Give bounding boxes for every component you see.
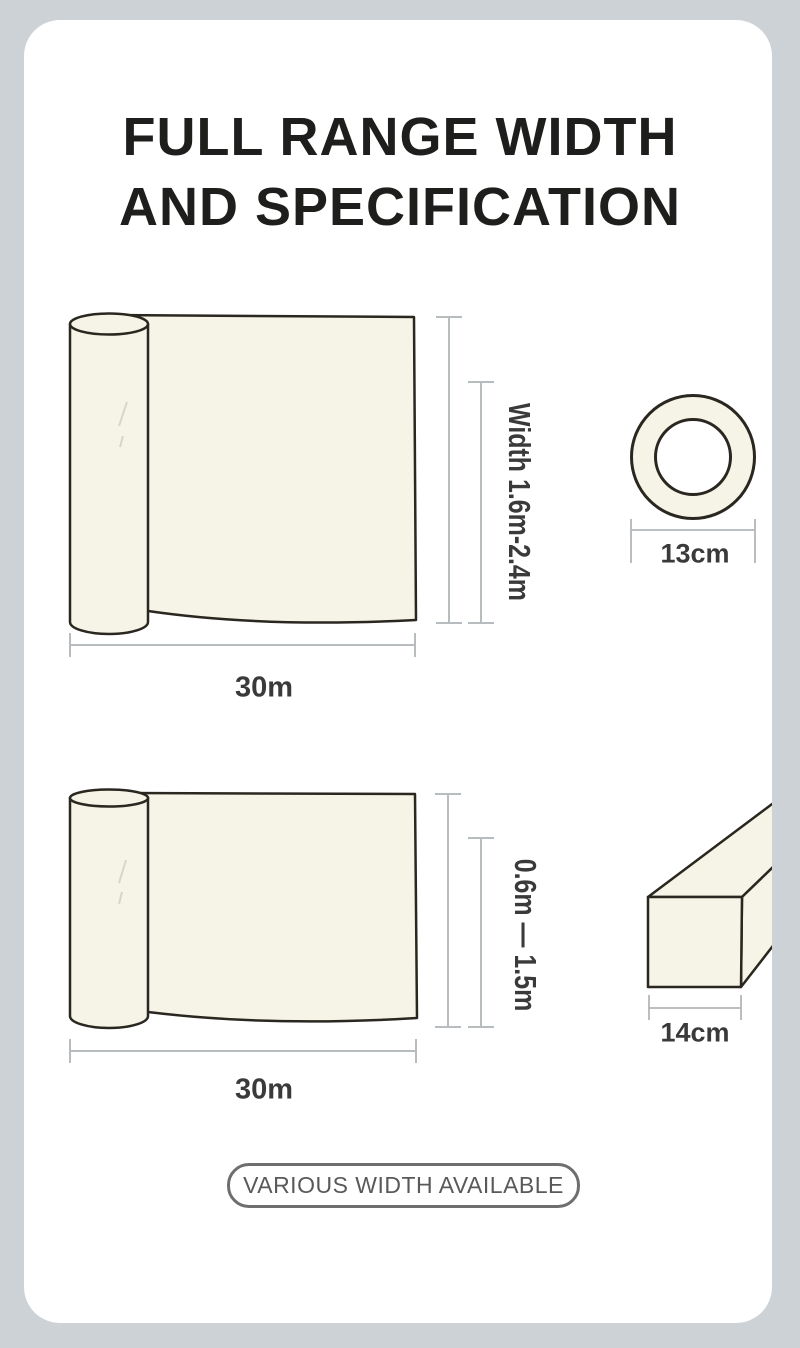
roll2-length-dimension <box>70 1039 416 1063</box>
specification-diagram <box>24 20 772 1323</box>
roll1-height-dimension-inner <box>468 382 494 623</box>
tube-diameter-label: 13cm <box>660 539 729 570</box>
roll-cylinder <box>70 324 148 634</box>
diagram-stage: FULL RANGE WIDTH AND SPECIFICATION <box>24 20 772 1323</box>
roll1-length-label: 30m <box>235 672 293 705</box>
roll-cylinder <box>70 798 148 1028</box>
spec-card: FULL RANGE WIDTH AND SPECIFICATION <box>24 20 772 1323</box>
various-width-badge: VARIOUS WIDTH AVAILABLE <box>227 1163 580 1208</box>
roll1-length-dimension <box>70 633 415 657</box>
roll1-width-label: Width 1.6m-2.4m <box>501 403 536 601</box>
badge-label: VARIOUS WIDTH AVAILABLE <box>243 1172 564 1199</box>
page-background: FULL RANGE WIDTH AND SPECIFICATION <box>0 0 800 1348</box>
roll-top-ellipse <box>70 790 148 807</box>
board-cross-section-icon <box>648 783 772 987</box>
tube-inner-circle <box>656 420 731 495</box>
board-front-face <box>648 897 742 987</box>
roll2-width-label: 0.6m — 1.5m <box>507 859 542 1012</box>
fabric-roll-diagram-2 <box>70 790 417 1029</box>
fabric-sheet <box>110 315 416 623</box>
roll2-length-label: 30m <box>235 1074 293 1107</box>
board-top-face <box>648 783 772 897</box>
fabric-sheet <box>110 793 417 1021</box>
roll-top-ellipse <box>70 314 148 335</box>
roll2-height-dimension-inner <box>468 838 494 1027</box>
roll1-height-dimension-outer <box>436 317 462 623</box>
roll2-height-dimension-outer <box>435 794 461 1027</box>
fabric-roll-diagram-1 <box>70 314 416 635</box>
board-width-label: 14cm <box>660 1018 729 1049</box>
board-width-bracket <box>649 995 741 1020</box>
